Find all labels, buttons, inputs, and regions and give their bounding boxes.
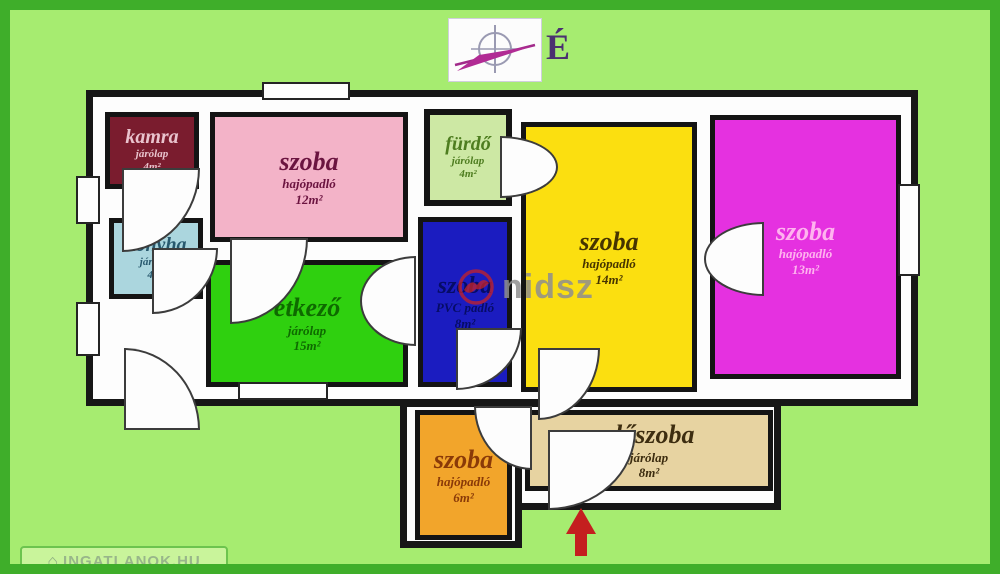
window-mark <box>898 184 920 276</box>
room-floor-type: járólap <box>136 149 168 161</box>
room-area: 6m² <box>453 491 474 505</box>
watermark-logo-icon <box>456 266 496 308</box>
room-area: 15m² <box>293 339 320 353</box>
watermark-text: nidsz <box>502 268 594 307</box>
room-name: fürdő <box>445 134 491 155</box>
room-floor-type: hajópadló <box>437 475 490 489</box>
room-floor-type: hajópadló <box>282 177 335 191</box>
room-furdo: fürdő járólap 4m² <box>424 109 512 206</box>
room-szoba-pink: szoba hajópadló 12m² <box>210 112 408 242</box>
room-floor-type: járólap <box>288 324 326 338</box>
floor-plan: kamra járólap 4m² szoba hajópadló 12m² f… <box>0 0 1000 574</box>
room-floor-type: hajópadló <box>779 247 832 261</box>
site-badge: ⌂ INGATLANOK.HU <box>20 546 228 574</box>
window-mark <box>262 82 350 100</box>
window-mark <box>76 302 100 356</box>
entrance-arrow-icon <box>564 508 598 560</box>
room-area: 12m² <box>295 193 322 207</box>
room-floor-type: járólap <box>630 451 668 465</box>
room-name: szoba <box>434 446 493 473</box>
site-badge-label: INGATLANOK.HU <box>63 553 201 570</box>
window-mark <box>76 176 100 224</box>
room-area: 8m² <box>639 466 660 480</box>
room-floor-type: járólap <box>452 156 484 168</box>
compass-icon <box>448 18 542 82</box>
room-area: 4m² <box>459 169 476 181</box>
window-mark <box>238 382 328 400</box>
watermark: nidsz <box>456 266 594 308</box>
room-name: szoba <box>279 148 338 175</box>
room-area: 13m² <box>792 263 819 277</box>
room-name: szoba <box>776 218 835 245</box>
north-label: É <box>546 26 570 68</box>
room-area: 14m² <box>595 273 622 287</box>
room-name: szoba <box>579 228 638 255</box>
room-name: kamra <box>125 127 178 148</box>
house-icon: ⌂ <box>47 552 58 570</box>
